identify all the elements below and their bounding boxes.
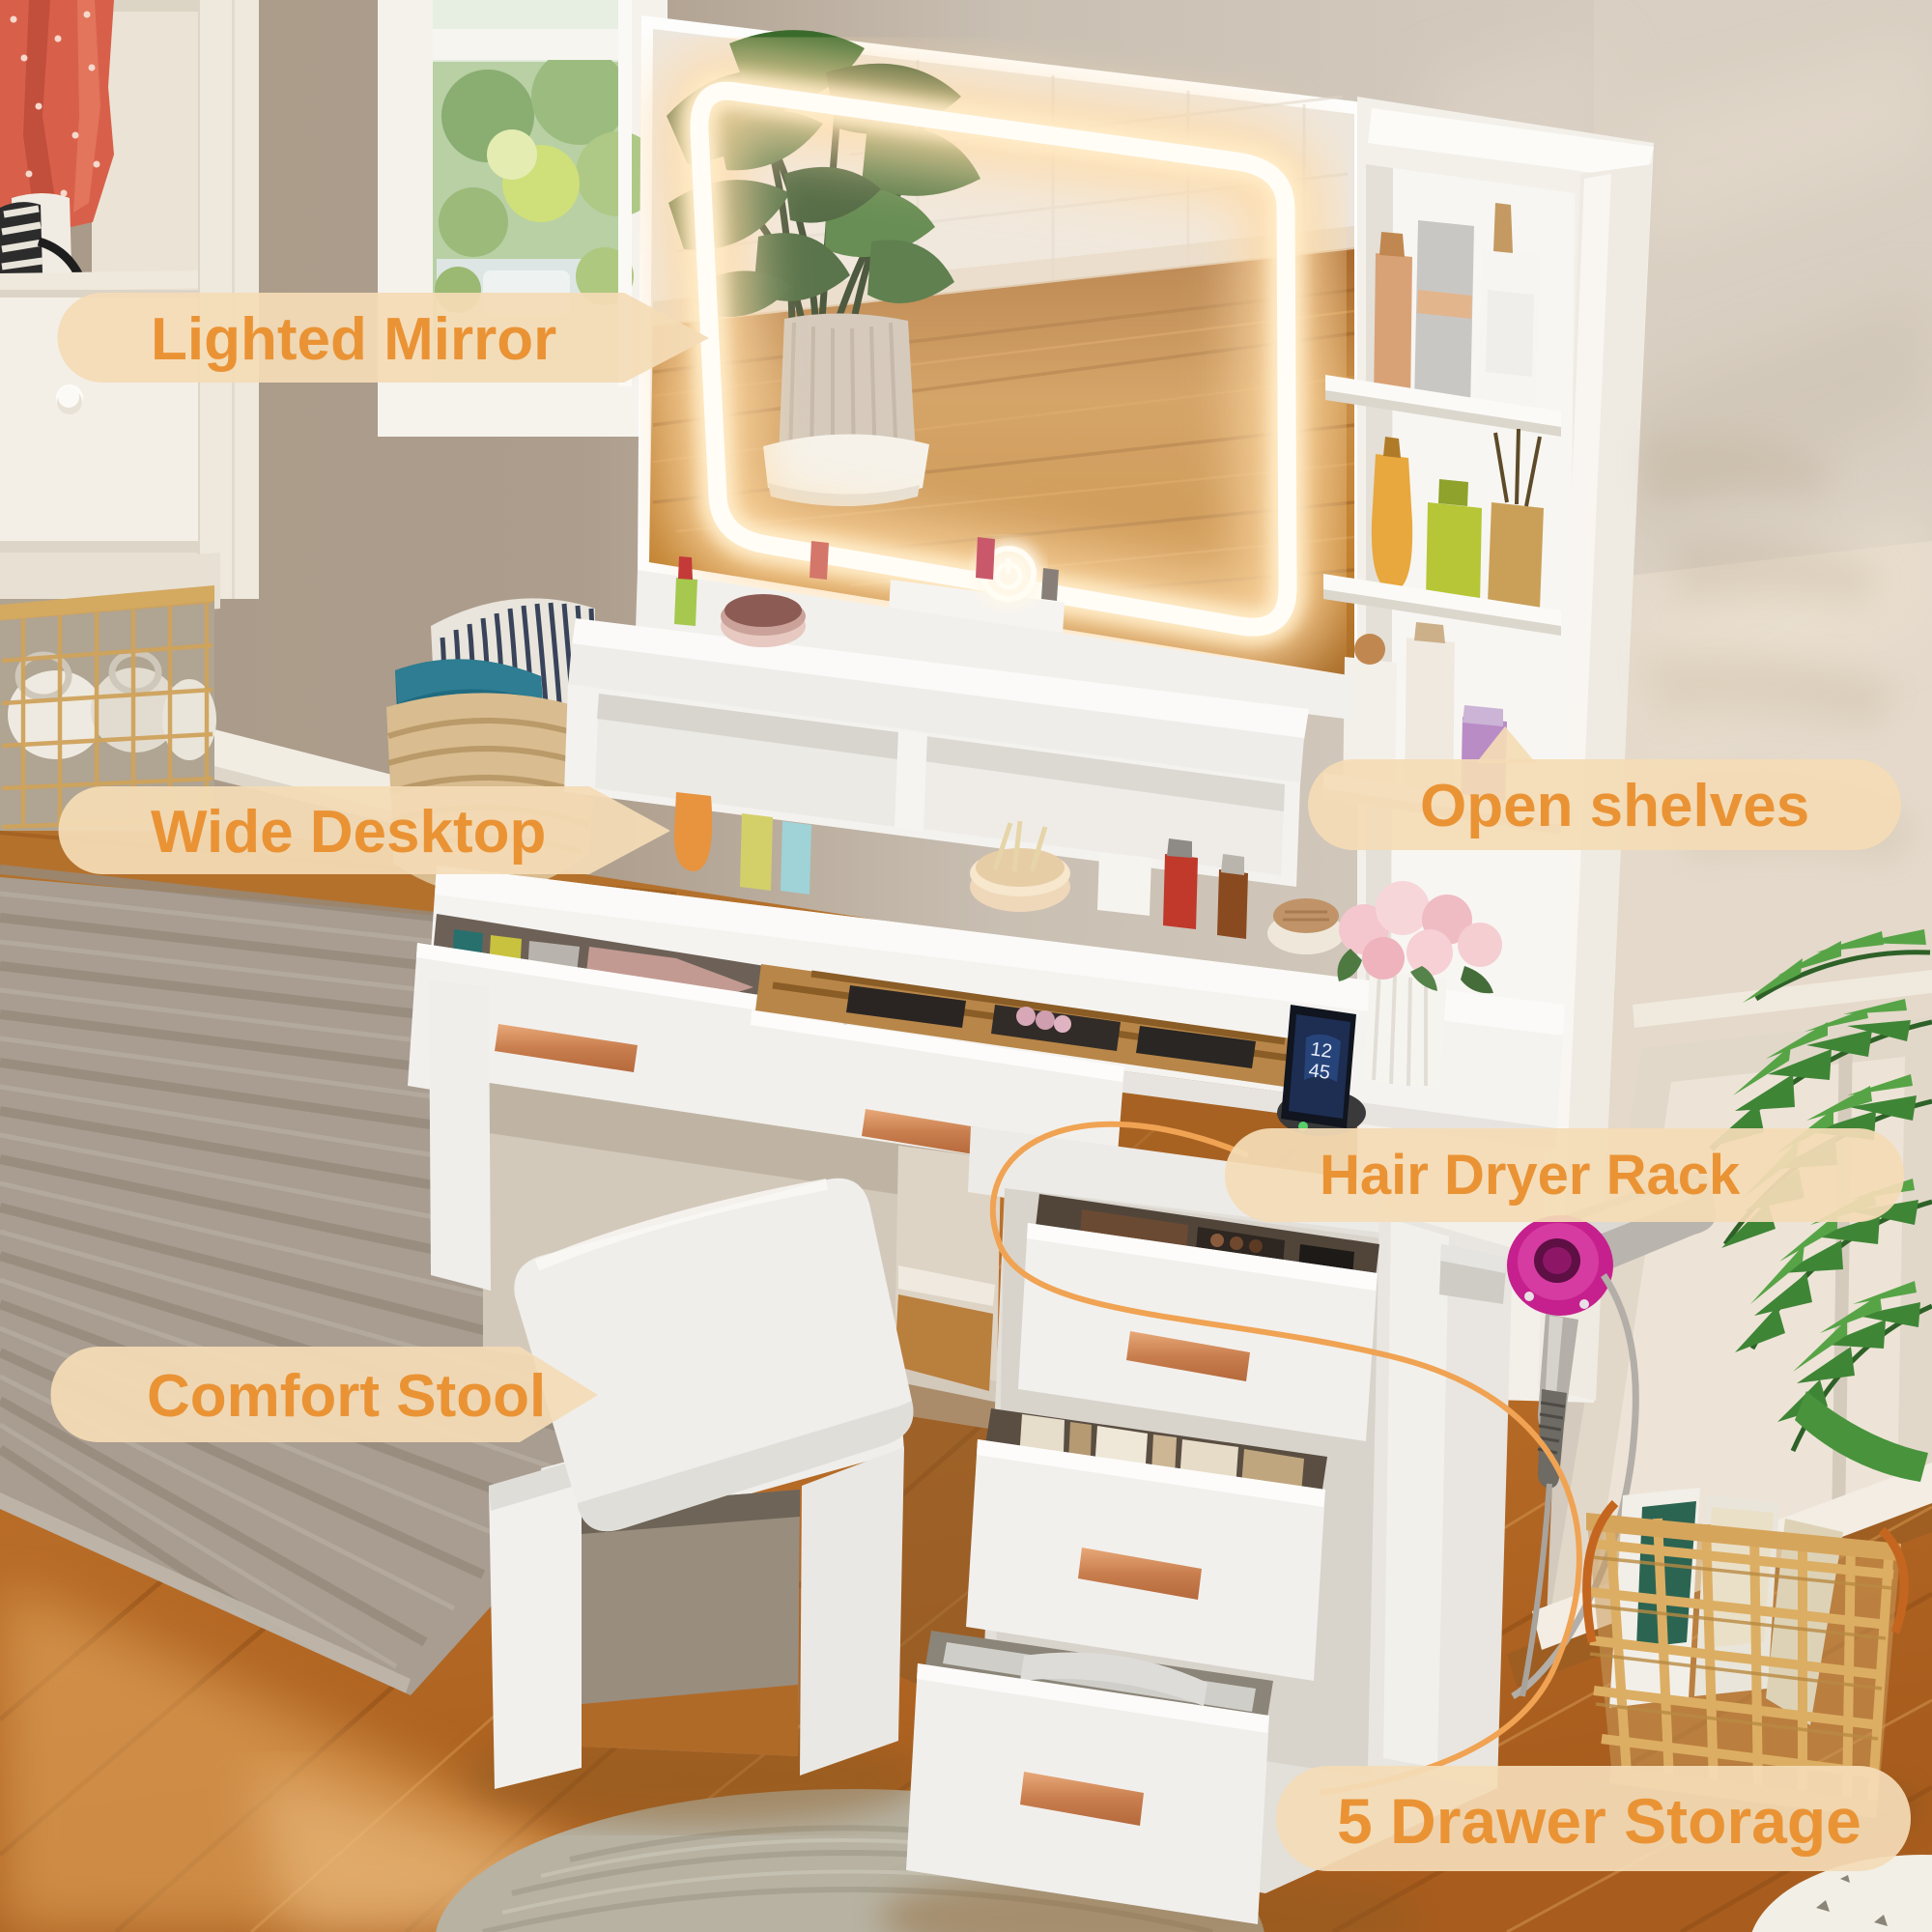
svg-text:Hair Dryer Rack: Hair Dryer Rack	[1320, 1144, 1741, 1207]
svg-text:Open shelves: Open shelves	[1420, 773, 1809, 839]
svg-text:45: 45	[1307, 1060, 1331, 1084]
svg-text:5 Drawer Storage: 5 Drawer Storage	[1337, 1785, 1861, 1857]
svg-text:Lighted Mirror: Lighted Mirror	[151, 306, 556, 373]
svg-text:Wide Desktop: Wide Desktop	[151, 799, 546, 866]
svg-text:Comfort Stool: Comfort Stool	[147, 1363, 546, 1430]
svg-text:12: 12	[1309, 1038, 1333, 1063]
